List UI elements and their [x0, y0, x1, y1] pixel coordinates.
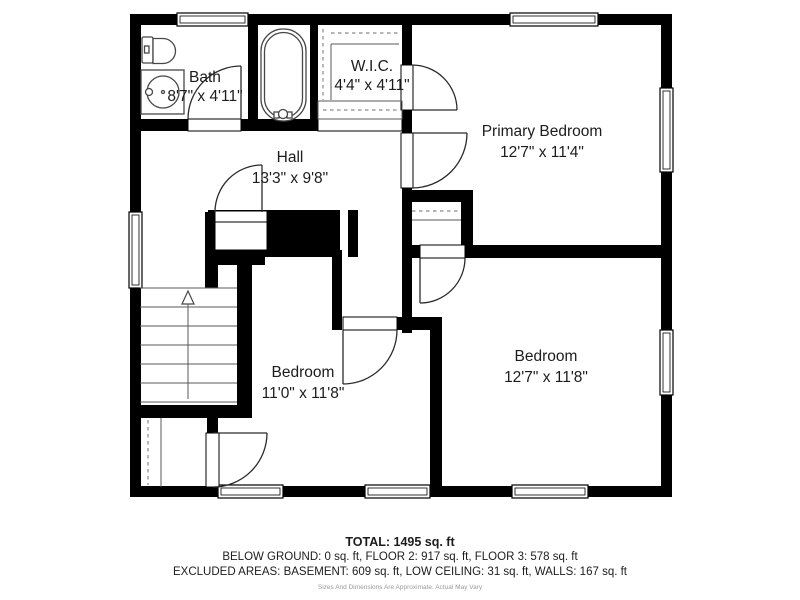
room-dims-primary-bedroom: 12'7" x 11'4"	[500, 144, 584, 161]
wall-hall-primary-a	[402, 110, 412, 133]
toilet-button-icon	[145, 46, 150, 53]
stairs	[140, 288, 237, 402]
wall-bedroom2-top-stub	[412, 245, 420, 258]
wall-bedrooms-divider	[430, 317, 442, 486]
window-right-primary	[660, 88, 673, 172]
wall-stairs-right	[237, 258, 252, 405]
wall-jog	[332, 250, 342, 330]
room-dims-wic: 4'4" x 4'11"	[334, 77, 409, 94]
summary-disclaimer: Sizes And Dimensions Are Approximate. Ac…	[0, 584, 800, 591]
opening-wic	[318, 119, 402, 131]
floor-plan-page: Bath 8'7" x 4'11" W.I.C. 4'4" x 4'11" Ha…	[0, 0, 800, 600]
wall-bath-bottom-left	[141, 119, 188, 131]
doorway-hall-niche	[215, 211, 267, 222]
wic-door-arc	[412, 65, 457, 110]
room-dims-bedroom-2: 12'7" x 11'8"	[504, 369, 588, 386]
doorways	[188, 65, 465, 487]
room-label-bedroom-1: Bedroom	[272, 364, 335, 381]
window-top-primary	[510, 13, 598, 26]
tub-faucet-icon	[279, 110, 288, 119]
hall-niche-inset	[215, 222, 267, 250]
wall-stairs-closet-right	[207, 405, 218, 433]
room-label-hall: Hall	[277, 149, 304, 166]
wall-hall-primary-b	[402, 188, 412, 333]
window-top-bath	[177, 13, 248, 26]
bedroom2-closet-door-arc	[420, 258, 465, 303]
primary-door-arc	[412, 133, 467, 188]
floor-plan-drawing: Bath 8'7" x 4'11" W.I.C. 4'4" x 4'11" Ha…	[0, 0, 800, 530]
toilet-bowl-icon	[153, 39, 176, 64]
window-bottom-2	[365, 485, 430, 498]
summary-excluded: EXCLUDED AREAS: BASEMENT: 609 sq. ft, LO…	[0, 565, 800, 580]
room-dims-hall: 13'3" x 9'8"	[252, 170, 328, 187]
window-bottom-1	[218, 485, 283, 498]
sink-faucet-icon	[146, 89, 153, 96]
wall-wic-left	[310, 25, 318, 119]
doorway-primary	[401, 133, 413, 188]
summary-total: TOTAL: 1495 sq. ft	[0, 534, 800, 550]
room-label-primary-bedroom: Primary Bedroom	[482, 123, 603, 140]
room-label-wic: W.I.C.	[351, 58, 393, 75]
room-dims-bedroom-1: 11'0" x 11'8"	[262, 385, 345, 402]
wall-stairs-bottom	[133, 405, 252, 418]
stairs-closet-door-arc	[213, 433, 267, 487]
sink-drain-icon	[162, 91, 165, 94]
doorway-bedroom1	[343, 317, 397, 330]
doorway-bath	[188, 119, 241, 131]
window-right-bedroom	[660, 330, 673, 395]
tub-inner-icon	[265, 33, 303, 118]
doorway-stairs-closet	[206, 433, 219, 487]
wall-tub-left	[248, 25, 258, 119]
wall-wic-right-upper	[402, 25, 412, 65]
wall-right	[661, 14, 672, 497]
wall-bedroom2-top	[465, 245, 661, 258]
room-dims-bath: 8'7" x 4'11"	[167, 88, 242, 105]
window-left-stairs	[129, 212, 142, 288]
bedroom1-door-arc	[343, 330, 397, 384]
area-summary: TOTAL: 1495 sq. ft BELOW GROUND: 0 sq. f…	[0, 534, 800, 591]
bath-fixtures	[141, 29, 306, 121]
wall-hall-stub	[348, 210, 358, 257]
room-label-bedroom-2: Bedroom	[515, 348, 578, 365]
window-bottom-3	[512, 485, 588, 498]
stairs-up-arrow-icon	[182, 291, 194, 304]
doorway-bedroom2-closet	[420, 245, 465, 258]
room-label-bath: Bath	[189, 69, 221, 86]
summary-floors: BELOW GROUND: 0 sq. ft, FLOOR 2: 917 sq.…	[0, 550, 800, 565]
